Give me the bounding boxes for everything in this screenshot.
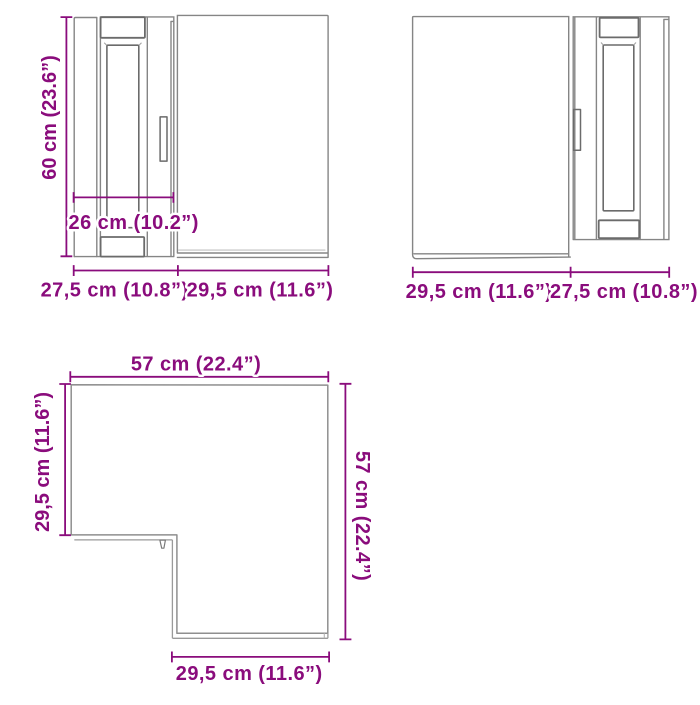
svg-text:29,5 cm (11.6”): 29,5 cm (11.6”) (176, 663, 323, 685)
svg-text:27,5 cm (10.8”): 27,5 cm (10.8”) (41, 280, 189, 302)
svg-text:57 cm (22.4”): 57 cm (22.4”) (351, 451, 373, 581)
svg-text:57 cm (22.4”): 57 cm (22.4”) (131, 353, 261, 375)
svg-text:29,5 cm (11.6”): 29,5 cm (11.6”) (406, 281, 553, 303)
svg-text:26 cm (10.2”): 26 cm (10.2”) (69, 212, 199, 234)
svg-text:60 cm (23.6”): 60 cm (23.6”) (39, 55, 61, 180)
svg-text:27,5 cm (10.8”): 27,5 cm (10.8”) (550, 281, 698, 303)
svg-text:29,5 cm (11.6”): 29,5 cm (11.6”) (187, 280, 334, 302)
svg-text:29,5 cm (11.6”): 29,5 cm (11.6”) (32, 392, 54, 532)
